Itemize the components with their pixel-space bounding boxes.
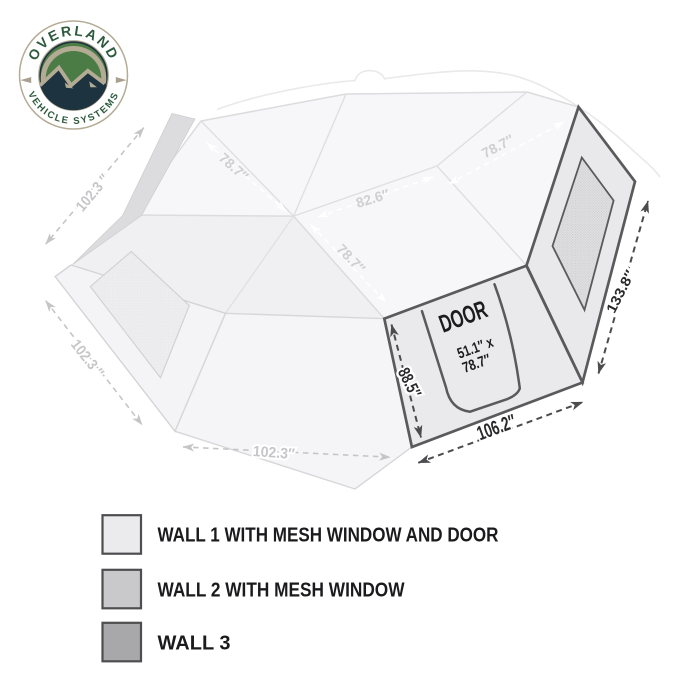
svg-text:WALL 2 WITH MESH WINDOW: WALL 2 WITH MESH WINDOW bbox=[158, 578, 406, 601]
svg-text:102.3″: 102.3″ bbox=[252, 443, 295, 463]
svg-text:WALL 1 WITH MESH WINDOW AND DO: WALL 1 WITH MESH WINDOW AND DOOR bbox=[158, 524, 499, 547]
svg-text:WALL 3: WALL 3 bbox=[158, 631, 231, 654]
